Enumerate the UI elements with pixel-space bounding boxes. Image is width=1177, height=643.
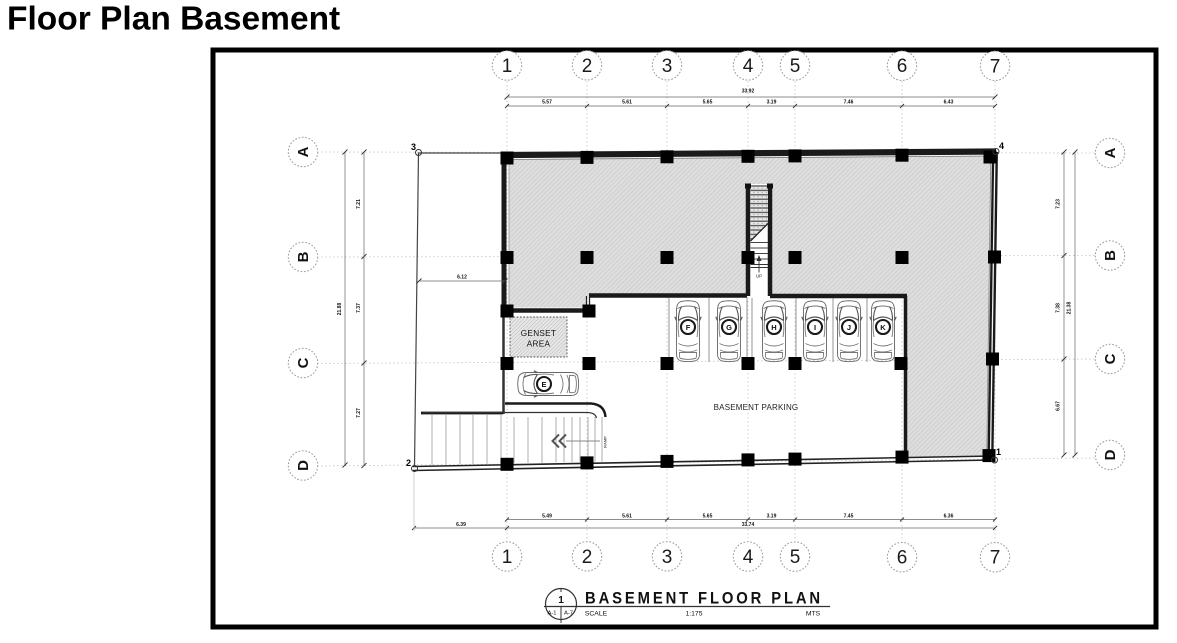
svg-text:A-1: A-1 xyxy=(547,611,556,617)
svg-text:4: 4 xyxy=(743,56,754,77)
svg-text:MTS: MTS xyxy=(806,611,821,618)
svg-text:6: 6 xyxy=(897,56,908,77)
svg-text:AREA: AREA xyxy=(527,340,551,349)
svg-text:B: B xyxy=(1102,250,1119,261)
svg-text:SCALE: SCALE xyxy=(585,611,608,618)
svg-text:7: 7 xyxy=(990,548,1001,569)
svg-text:33.92: 33.92 xyxy=(742,89,755,95)
svg-text:4: 4 xyxy=(743,547,754,568)
svg-text:7.37: 7.37 xyxy=(356,303,362,313)
svg-text:6.12: 6.12 xyxy=(457,275,467,281)
svg-text:BASEMENT FLOOR PLAN: BASEMENT FLOOR PLAN xyxy=(585,590,823,608)
svg-text:7.46: 7.46 xyxy=(844,100,854,106)
svg-text:1:175: 1:175 xyxy=(685,611,702,618)
svg-text:BASEMENT PARKING: BASEMENT PARKING xyxy=(714,403,799,412)
svg-text:21.38: 21.38 xyxy=(1067,302,1073,315)
svg-text:3.19: 3.19 xyxy=(767,100,777,106)
svg-text:7.21: 7.21 xyxy=(356,199,362,209)
svg-text:A: A xyxy=(295,146,312,157)
svg-text:1: 1 xyxy=(502,547,513,568)
svg-text:5: 5 xyxy=(790,56,801,77)
svg-text:D: D xyxy=(295,460,312,471)
svg-text:1: 1 xyxy=(996,447,1001,457)
svg-text:7.45: 7.45 xyxy=(844,513,854,519)
svg-text:2: 2 xyxy=(406,458,411,468)
svg-text:5.65: 5.65 xyxy=(703,513,713,519)
svg-text:5.57: 5.57 xyxy=(542,100,552,106)
svg-text:3: 3 xyxy=(662,547,673,568)
svg-text:21.88: 21.88 xyxy=(337,303,343,316)
svg-text:I: I xyxy=(814,323,816,332)
svg-text:K: K xyxy=(880,323,886,332)
svg-text:6.43: 6.43 xyxy=(944,100,954,106)
svg-text:7.23: 7.23 xyxy=(1056,199,1062,209)
svg-text:J: J xyxy=(847,323,851,332)
svg-text:5.61: 5.61 xyxy=(622,100,632,106)
svg-text:5.65: 5.65 xyxy=(703,100,713,106)
svg-text:1: 1 xyxy=(558,595,564,606)
svg-text:A: A xyxy=(1102,147,1119,158)
svg-text:3: 3 xyxy=(662,56,673,77)
svg-text:6.67: 6.67 xyxy=(1056,401,1062,411)
svg-text:4: 4 xyxy=(999,141,1004,151)
svg-text:UP: UP xyxy=(756,274,762,279)
svg-text:E: E xyxy=(541,380,546,389)
svg-text:5.61: 5.61 xyxy=(622,513,632,519)
svg-text:B: B xyxy=(295,251,312,262)
svg-text:7: 7 xyxy=(990,56,1001,77)
svg-text:3.19: 3.19 xyxy=(767,513,777,519)
svg-text:H: H xyxy=(771,323,776,332)
svg-text:C: C xyxy=(1102,353,1119,364)
svg-text:6.36: 6.36 xyxy=(944,513,954,519)
svg-text:Floor Plan Basement: Floor Plan Basement xyxy=(7,1,340,38)
svg-text:D: D xyxy=(1102,449,1119,460)
svg-text:6: 6 xyxy=(897,548,908,569)
svg-text:5: 5 xyxy=(790,547,801,568)
svg-text:3: 3 xyxy=(411,142,416,152)
svg-text:7.27: 7.27 xyxy=(356,408,362,418)
svg-text:F: F xyxy=(686,323,691,332)
svg-text:2: 2 xyxy=(582,56,593,77)
svg-text:6.39: 6.39 xyxy=(456,522,466,528)
svg-text:RAMP: RAMP xyxy=(603,436,608,448)
svg-text:33.74: 33.74 xyxy=(742,522,755,528)
svg-text:GENSET: GENSET xyxy=(521,329,556,338)
svg-text:G: G xyxy=(726,323,732,332)
svg-text:7.38: 7.38 xyxy=(1056,303,1062,313)
svg-text:C: C xyxy=(295,357,312,368)
svg-text:2: 2 xyxy=(582,547,593,568)
svg-text:A-7: A-7 xyxy=(564,611,573,617)
svg-text:5.49: 5.49 xyxy=(542,513,552,519)
svg-text:1: 1 xyxy=(502,56,513,77)
